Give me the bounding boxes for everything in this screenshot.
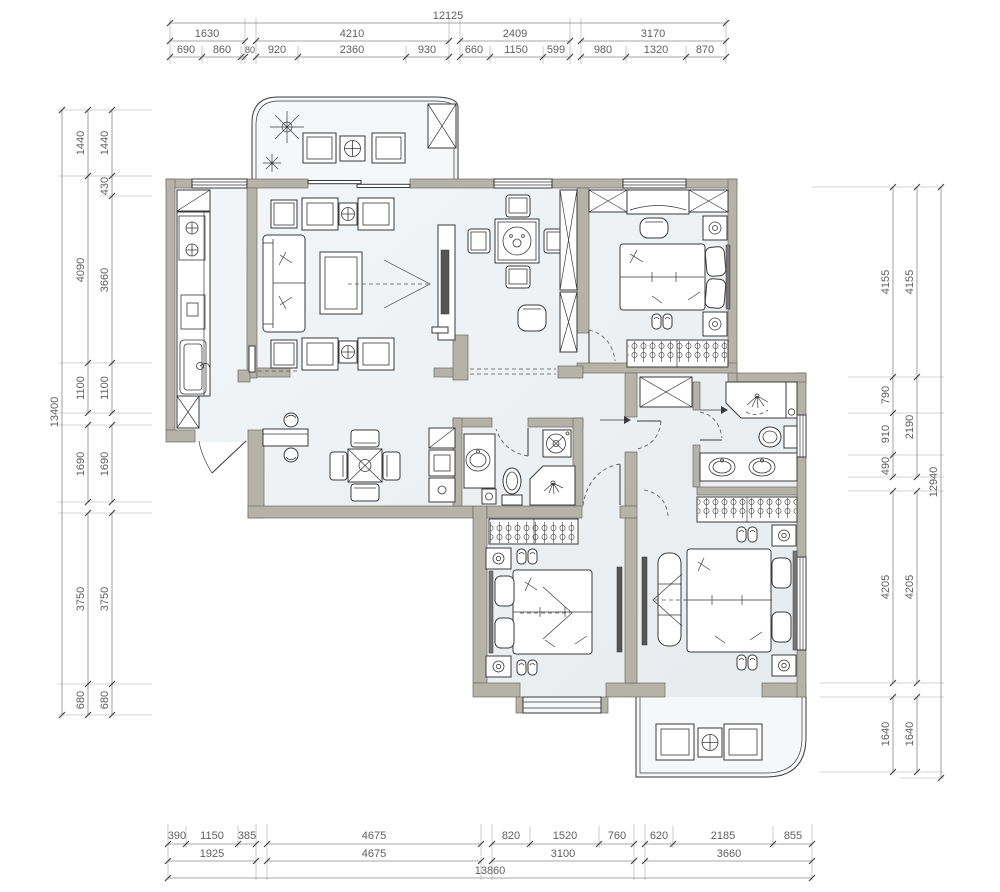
- dim-label: 4675: [362, 848, 386, 860]
- shower: [530, 466, 575, 505]
- dim-label: 980: [594, 44, 612, 56]
- dimension-chain-right: 4155 790 910 490 4205 1640 4155 2190 420…: [812, 184, 944, 781]
- bench: [658, 553, 681, 646]
- chair: [351, 484, 379, 501]
- dim-label: 1690: [75, 452, 87, 476]
- tv-panel: [642, 557, 647, 645]
- dining-chair: [506, 266, 530, 288]
- coffee-table: [320, 252, 362, 314]
- nightstand: [703, 312, 727, 336]
- dim-label: 3100: [551, 848, 575, 860]
- dim-label: 80: [245, 45, 255, 55]
- dim-label: 4205: [880, 575, 892, 599]
- dim-label: 680: [99, 691, 111, 709]
- dim-label: 930: [418, 44, 436, 56]
- dim-label: 910: [880, 425, 892, 443]
- dim-label: 1440: [99, 131, 111, 155]
- dim-label: 599: [547, 44, 565, 56]
- flue-box: [177, 396, 199, 428]
- dim-label: 12125: [433, 10, 464, 22]
- dim-label: 12940: [928, 467, 940, 498]
- dim-label: 1690: [99, 452, 111, 476]
- dim-label: 680: [75, 691, 87, 709]
- dim-label: 13400: [49, 397, 61, 428]
- dim-label: 4155: [904, 270, 916, 294]
- dim-label: 13860: [475, 865, 506, 877]
- dim-label: 1320: [644, 44, 668, 56]
- dim-label: 790: [880, 386, 892, 404]
- closet-hangers: [697, 497, 797, 522]
- stool: [284, 413, 298, 427]
- nightstand: [772, 525, 796, 546]
- storage-cabinet: [429, 428, 455, 502]
- floor-plan: 12125 1630 4210 2409 3170 690 860 80 920…: [0, 0, 1000, 892]
- nightstand: [486, 548, 511, 569]
- dim-label: 1925: [200, 848, 224, 860]
- square-table: [348, 449, 382, 482]
- dim-label: 3750: [99, 587, 111, 611]
- tv-cabinet: [438, 225, 455, 340]
- dining-table: [495, 219, 539, 263]
- armchair: [302, 198, 338, 230]
- bathroom-window: [797, 415, 806, 457]
- entry-door: [199, 441, 246, 473]
- dimension-chain-bottom: 390 1150 385 4675 820 1520 760 620 2185 …: [165, 824, 815, 881]
- balcony-armchair: [372, 133, 405, 163]
- fridge: [177, 190, 210, 211]
- dim-label: 390: [168, 830, 186, 842]
- dim-label: 1640: [880, 722, 892, 746]
- balcony-armchair: [656, 724, 694, 760]
- closet-hangers: [627, 340, 728, 367]
- nightstand: [703, 216, 727, 240]
- bath-cabinet: [786, 382, 797, 418]
- flue-box: [428, 104, 456, 148]
- balcony-armchair: [724, 724, 762, 760]
- dim-label: 870: [696, 44, 714, 56]
- dim-label: 2409: [503, 28, 527, 40]
- dim-label: 385: [238, 830, 256, 842]
- bedroom3-window: [797, 557, 806, 650]
- armchair: [358, 198, 394, 230]
- dim-label: 1630: [195, 28, 219, 40]
- dim-label: 430: [99, 177, 111, 195]
- pillow: [772, 558, 791, 588]
- dim-label: 760: [608, 830, 626, 842]
- headboard-cabinet: [627, 190, 689, 214]
- dim-label: 1440: [75, 131, 87, 155]
- washing-machine: [543, 430, 571, 457]
- dim-label: 620: [650, 830, 668, 842]
- chair: [383, 452, 400, 480]
- dim-label: 660: [465, 44, 483, 56]
- dining-chair: [468, 229, 490, 253]
- dim-label: 3660: [717, 848, 741, 860]
- dim-label: 3750: [75, 587, 87, 611]
- dim-label: 1520: [553, 830, 577, 842]
- armchair: [302, 338, 338, 370]
- dim-label: 1100: [75, 376, 87, 400]
- tv-panel: [617, 567, 622, 652]
- dim-label: 690: [177, 44, 195, 56]
- dim-label: 4210: [340, 28, 364, 40]
- toilet: [502, 468, 522, 505]
- dim-label: 1150: [504, 44, 528, 56]
- wardrobe-column: [560, 190, 577, 352]
- dining-window: [494, 179, 552, 188]
- armchair: [358, 338, 394, 370]
- chair: [351, 430, 379, 447]
- pillow: [705, 278, 726, 309]
- stool: [284, 448, 298, 462]
- pillow: [495, 576, 514, 606]
- side-table: [271, 340, 297, 368]
- desk-chair: [518, 305, 546, 331]
- dim-label: 4675: [362, 830, 386, 842]
- tea-table: [339, 203, 357, 225]
- balcony-side-table: [698, 728, 722, 757]
- tea-table: [339, 341, 357, 363]
- pillow: [772, 612, 791, 642]
- dim-label: 3170: [641, 28, 665, 40]
- dim-label: 4155: [880, 270, 892, 294]
- dim-label: 2360: [340, 44, 364, 56]
- dining-chair: [506, 195, 530, 217]
- dim-label: 1640: [904, 722, 916, 746]
- balcony-armchair: [303, 133, 336, 163]
- dim-label: 4090: [75, 258, 87, 282]
- nightstand: [772, 655, 796, 676]
- dimension-chain-left: 1440 430 3660 1100 1690 3750 680 1440 40…: [49, 107, 152, 718]
- balcony-side-table: [340, 136, 365, 161]
- console-table: [263, 429, 308, 446]
- pillow: [495, 618, 514, 648]
- chair: [330, 452, 347, 480]
- dimension-chain-top: 12125 1630 4210 2409 3170 690 860 80 920…: [167, 10, 729, 64]
- dim-label: 1100: [99, 376, 111, 400]
- dim-label: 490: [880, 457, 892, 475]
- dim-label: 4205: [904, 575, 916, 599]
- bedroom1-window: [623, 179, 686, 188]
- kitchen-window: [192, 179, 247, 188]
- double-sink-vanity: [700, 453, 797, 481]
- closet-hangers: [489, 519, 578, 544]
- bay-window-floor: [516, 697, 608, 713]
- shower: [726, 382, 786, 418]
- dim-label: 3660: [99, 268, 111, 292]
- nightstand: [486, 656, 511, 677]
- dim-label: 920: [268, 44, 286, 56]
- dim-label: 820: [502, 830, 520, 842]
- kitchen-door-leaf: [249, 346, 255, 372]
- sofa: [263, 235, 305, 332]
- door-leaf: [432, 327, 448, 333]
- side-table: [271, 200, 297, 228]
- stool: [640, 218, 668, 238]
- closet: [640, 377, 692, 407]
- dim-label: 1150: [200, 830, 224, 842]
- dim-label: 2185: [711, 830, 735, 842]
- dim-label: 855: [784, 830, 802, 842]
- dim-label: 860: [213, 44, 231, 56]
- dim-label: 2190: [904, 415, 916, 439]
- pillow: [705, 246, 726, 277]
